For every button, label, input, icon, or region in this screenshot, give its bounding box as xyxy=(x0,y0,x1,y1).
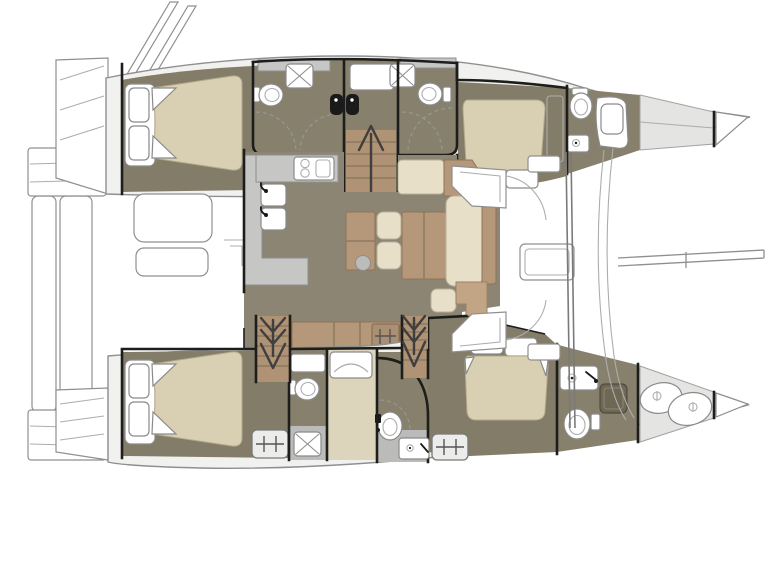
stool-round xyxy=(356,256,371,271)
swim-platform xyxy=(60,196,92,412)
washbasin-icon xyxy=(330,94,343,115)
deck-hatch xyxy=(528,156,560,172)
swim-platform-rail xyxy=(32,196,56,412)
companionway-starboard-fwd xyxy=(402,316,428,378)
shower-icon xyxy=(390,64,415,87)
pillow-icon xyxy=(506,170,538,188)
dinette-stool xyxy=(377,212,401,239)
pillow-icon xyxy=(129,126,149,160)
sink-icon xyxy=(567,135,589,152)
pillow-icon xyxy=(129,364,149,398)
dinette xyxy=(346,212,446,279)
cabinet xyxy=(350,64,394,90)
bed-port-aft xyxy=(125,76,242,170)
galley-sink-icon xyxy=(261,183,286,206)
washbasin-icon xyxy=(346,94,359,115)
pillow-icon xyxy=(129,88,149,122)
hull-starboard xyxy=(108,316,748,468)
shower-icon xyxy=(286,64,313,88)
aft-cockpit xyxy=(134,194,248,276)
bowsprit xyxy=(618,250,764,268)
dinette-stool xyxy=(377,242,401,269)
bed-starboard-aft xyxy=(125,352,242,446)
catamaran-floor-plan xyxy=(0,0,768,576)
sofa-backrest xyxy=(482,200,496,284)
escape-hatch-icon xyxy=(252,430,288,458)
deck-hatch xyxy=(528,344,560,360)
cockpit-table xyxy=(134,194,212,242)
sofa-stool xyxy=(431,289,456,312)
cockpit-bench xyxy=(136,248,208,276)
galley-sink-icon xyxy=(261,207,286,230)
corridor-vanity xyxy=(330,352,372,378)
companionway-starboard-aft xyxy=(256,316,290,382)
escape-hatch-icon xyxy=(432,434,468,460)
bow-locker xyxy=(716,393,748,417)
bow-locker xyxy=(716,112,748,145)
locker xyxy=(601,104,623,134)
sink-icon xyxy=(399,438,429,459)
shower-icon xyxy=(600,384,627,413)
mattress xyxy=(465,356,548,420)
transom-steps-top xyxy=(28,58,108,196)
pillow-icon xyxy=(129,402,149,436)
shower-icon xyxy=(294,432,321,456)
sink-icon xyxy=(560,366,598,390)
sofa-seat xyxy=(446,196,482,286)
vanity-counter xyxy=(291,354,325,372)
sofa-bench-aft xyxy=(398,160,444,194)
floor-plan-canvas xyxy=(0,0,768,576)
stove-icon xyxy=(294,157,334,180)
